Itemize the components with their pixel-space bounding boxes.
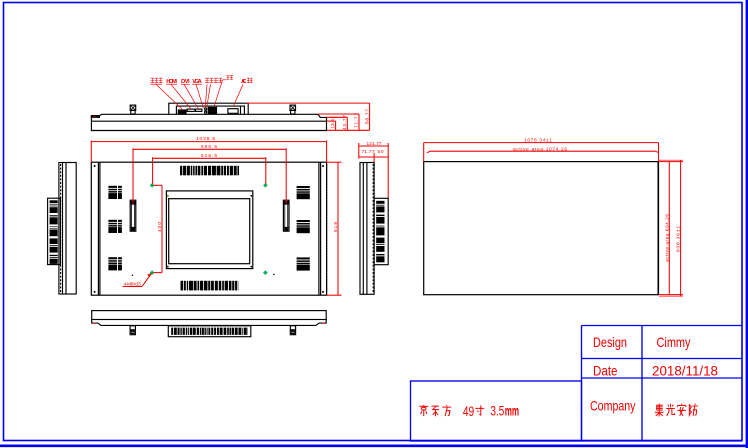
svg-text:Design: Design xyxy=(593,334,627,350)
svg-text:696.5: 696.5 xyxy=(201,144,217,150)
svg-text:active area 604.26: active area 604.26 xyxy=(665,214,671,262)
svg-text:1039.5: 1039.5 xyxy=(196,136,215,142)
svg-text:Date: Date xyxy=(593,362,618,378)
svg-text:71.77: 71.77 xyxy=(354,113,360,128)
svg-text:43.77: 43.77 xyxy=(342,115,348,130)
svg-text:1078.34±1: 1078.34±1 xyxy=(524,137,552,143)
svg-text:mm: mm xyxy=(505,404,519,419)
svg-text:516.5: 516.5 xyxy=(201,153,217,159)
svg-text:(3.5): (3.5) xyxy=(330,117,336,128)
svg-text:608.36±1: 608.36±1 xyxy=(676,226,682,252)
svg-text:71.77: 71.77 xyxy=(362,149,375,155)
svg-text:2018/11/18: 2018/11/18 xyxy=(652,362,718,378)
svg-text:Company: Company xyxy=(590,397,636,413)
svg-text:4-M8X15: 4-M8X15 xyxy=(124,281,142,287)
svg-text:50: 50 xyxy=(378,149,384,155)
svg-text:Cimmy: Cimmy xyxy=(657,334,691,350)
svg-text:121.77: 121.77 xyxy=(367,141,382,147)
svg-text:400: 400 xyxy=(157,222,163,232)
svg-text:3.5: 3.5 xyxy=(491,404,505,419)
svg-text:88.77: 88.77 xyxy=(364,109,370,124)
svg-text:active area 1074.26: active area 1074.26 xyxy=(513,147,567,153)
svg-text:618: 618 xyxy=(333,222,339,232)
svg-text:AC: AC xyxy=(241,79,247,85)
svg-text:49: 49 xyxy=(463,404,474,419)
